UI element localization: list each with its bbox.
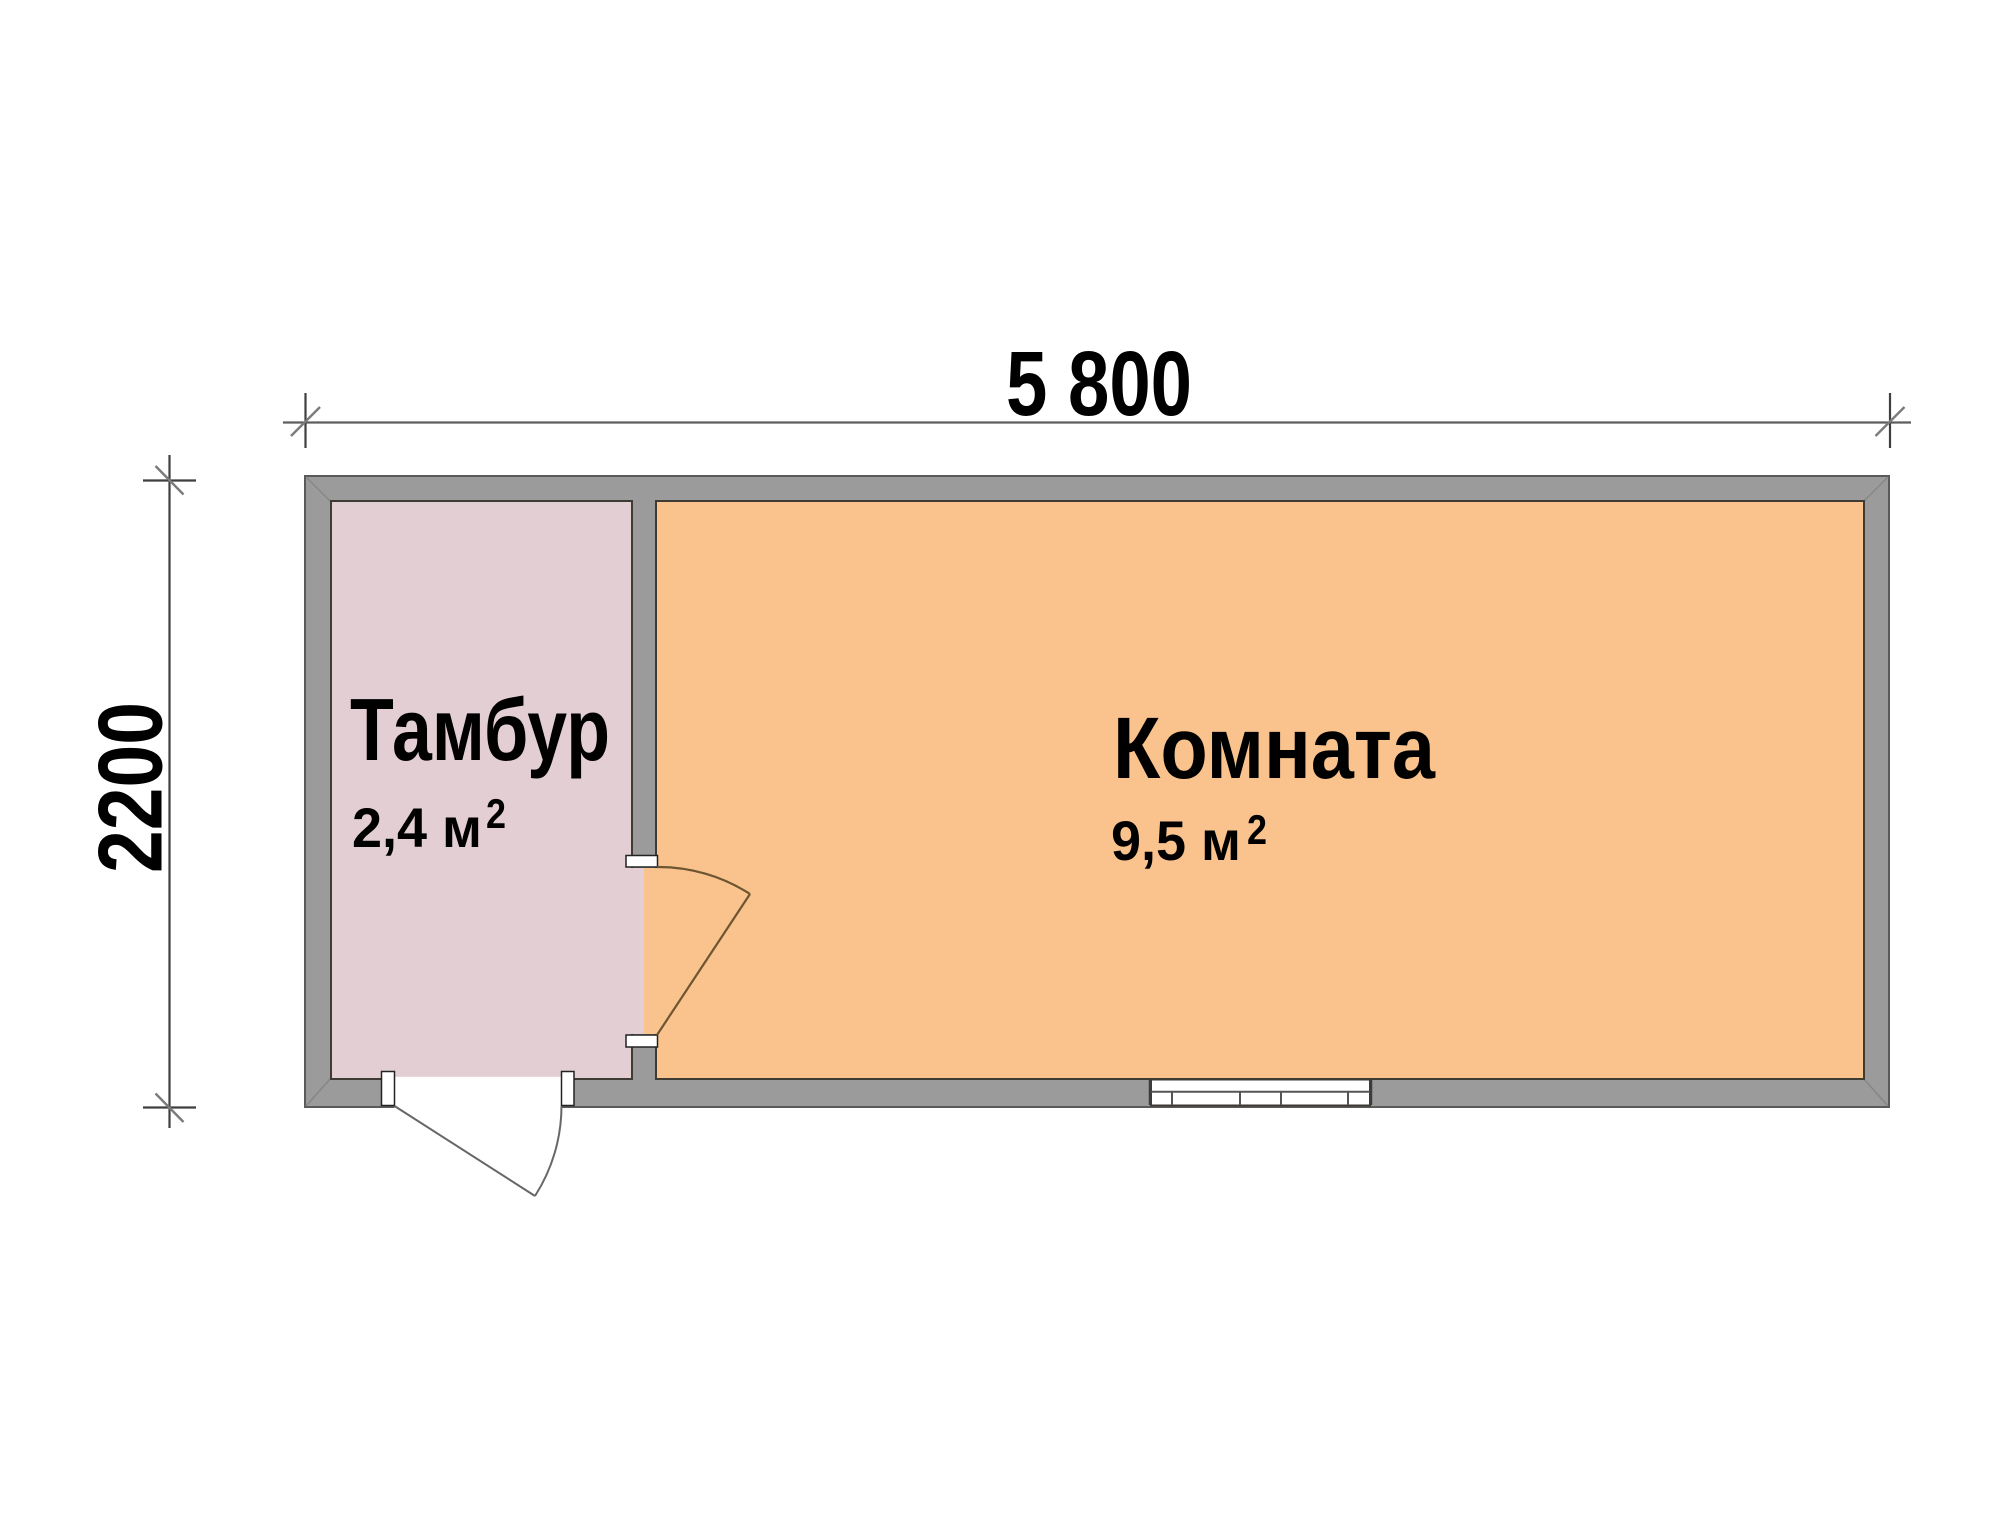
svg-text:2: 2: [1247, 806, 1267, 853]
svg-text:2200: 2200: [81, 702, 182, 873]
svg-text:5 800: 5 800: [1006, 333, 1192, 435]
svg-text:2: 2: [486, 790, 506, 837]
svg-text:Комната: Комната: [1113, 700, 1436, 797]
svg-text:9,5 м: 9,5 м: [1111, 809, 1241, 872]
svg-text:2,4 м: 2,4 м: [352, 796, 482, 859]
svg-text:Тамбур: Тамбур: [350, 680, 610, 779]
